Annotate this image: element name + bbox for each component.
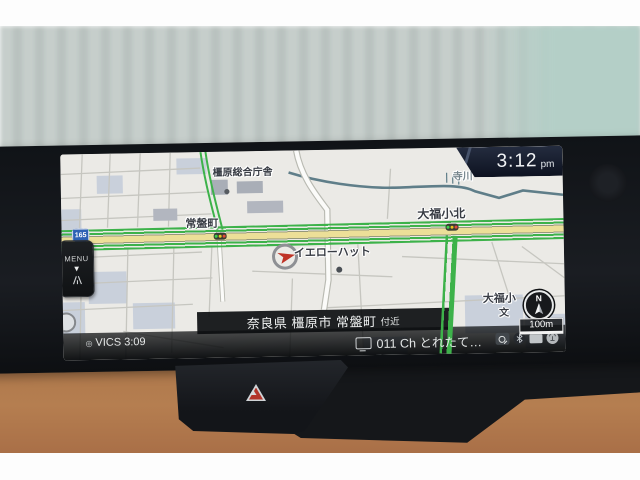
navigation-screen[interactable]: 165 橿原総合庁舎 常盤町 大福小北 イエローハット 寺川 大福小 文 3:1… [60,146,566,361]
compass-north-label: N [536,293,542,303]
label-terakawa-river: 寺川 [453,167,473,182]
tv-channel-text: 011 Ch とれたて… [376,331,482,352]
vics-status: ◎ VICS 3:09 [85,336,145,349]
menu-button[interactable]: MENU ▼ [60,240,94,298]
compass-needle-icon [533,303,544,314]
clock-time: 3:12 [496,150,537,173]
photo-margin-bottom [0,453,640,480]
clock-meridiem: pm [540,158,554,169]
camera-icon [495,333,509,345]
tv-channel-info: 011 Ch とれたて… [355,331,482,352]
menu-label: MENU [64,254,88,263]
traffic-signal-icon [214,233,227,240]
label-daifuku-kita: 大福小北 [417,204,465,222]
map-scale-button[interactable]: 100m [519,318,563,335]
vics-time: 3:09 [124,336,146,348]
hazard-warning-button[interactable] [246,384,266,401]
photo-of-dashboard: 165 橿原総合庁舎 常盤町 大福小北 イエローハット 寺川 大福小 文 3:1… [0,0,640,480]
clock-banner: 3:12 pm [456,146,563,178]
bezel-sensor-dot [588,164,627,203]
chevron-down-icon: ▼ [73,265,81,273]
school-symbol: 文 [499,304,509,319]
label-government-office: 橿原総合庁舎 [212,163,272,179]
menu-road-icon [70,275,84,284]
photo-margin-top [0,0,640,26]
address-suffix: 付近 [380,314,399,328]
tv-icon [355,337,371,349]
traffic-signal-icon [445,224,458,231]
label-yellow-hat: イエローハット [294,243,371,260]
label-tokiwacho: 常盤町 [185,215,218,232]
sd-card-icon [529,334,542,343]
vics-label: VICS [95,336,121,348]
display-unit-bezel: 165 橿原総合庁舎 常盤町 大福小北 イエローハット 寺川 大福小 文 3:1… [0,135,640,374]
vics-beacon-icon: ◎ [85,338,92,347]
